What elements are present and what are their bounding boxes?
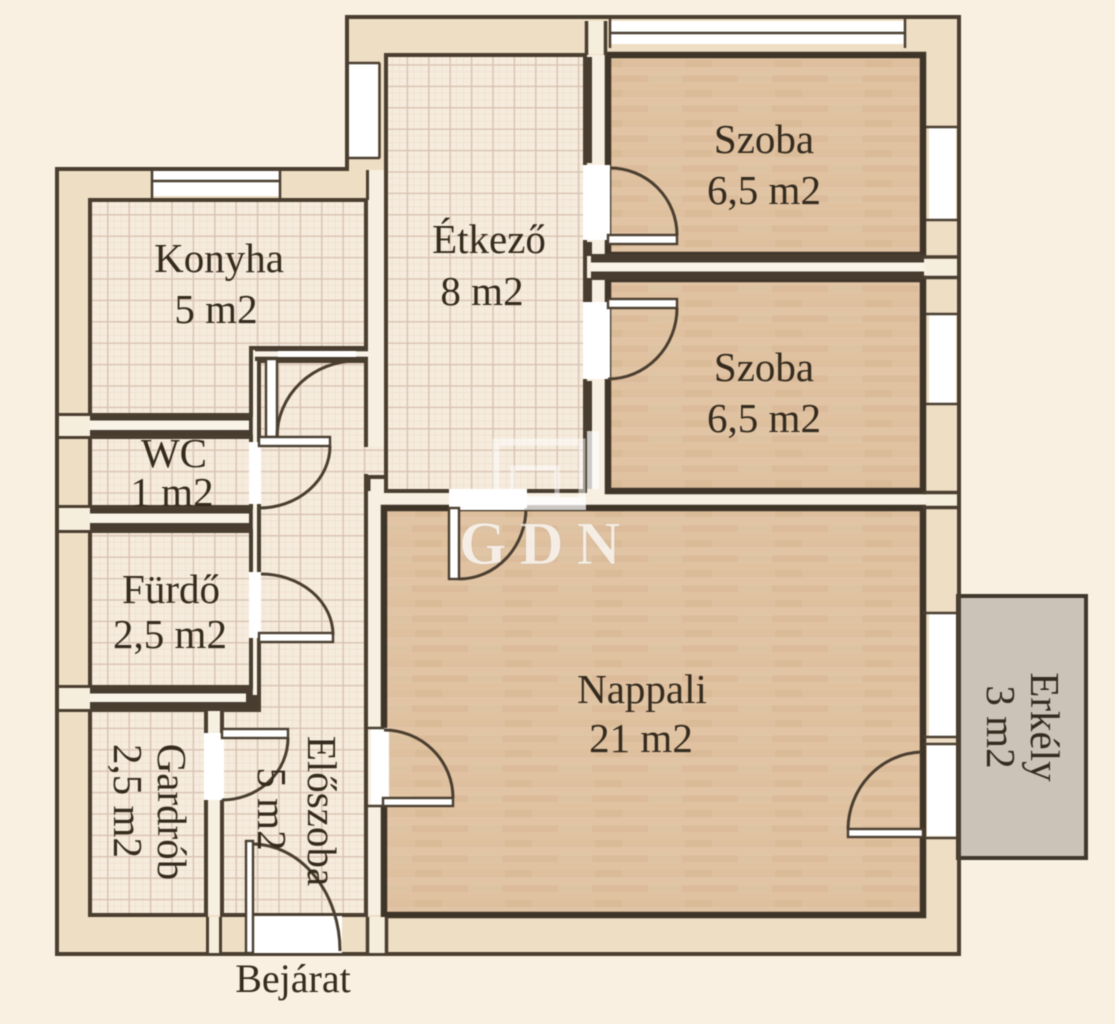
svg-text:6,5 m2: 6,5 m2 <box>707 395 821 441</box>
svg-text:1 m2: 1 m2 <box>130 469 213 515</box>
svg-text:8 m2: 8 m2 <box>440 268 523 314</box>
svg-text:3 m2: 3 m2 <box>978 685 1024 768</box>
svg-text:Bejárat: Bejárat <box>235 956 351 1001</box>
svg-text:Szoba: Szoba <box>714 116 814 162</box>
svg-text:2,5 m2: 2,5 m2 <box>113 611 227 657</box>
svg-text:Fürdő: Fürdő <box>122 566 220 612</box>
svg-text:5 m2: 5 m2 <box>174 286 257 332</box>
svg-text:Erkély: Erkély <box>1022 672 1068 782</box>
svg-text:Konyha: Konyha <box>154 235 284 281</box>
svg-text:21 m2: 21 m2 <box>589 715 693 761</box>
svg-text:6,5 m2: 6,5 m2 <box>707 167 821 213</box>
svg-text:Előszoba: Előszoba <box>299 736 345 886</box>
svg-text:2,5 m2: 2,5 m2 <box>105 744 151 858</box>
svg-text:Nappali: Nappali <box>577 666 707 712</box>
svg-text:Szoba: Szoba <box>714 344 814 390</box>
svg-text:5 m2: 5 m2 <box>249 767 295 850</box>
svg-text:GDN: GDN <box>459 511 634 578</box>
svg-text:Gardrób: Gardrób <box>149 744 195 881</box>
svg-text:Étkező: Étkező <box>432 216 546 262</box>
